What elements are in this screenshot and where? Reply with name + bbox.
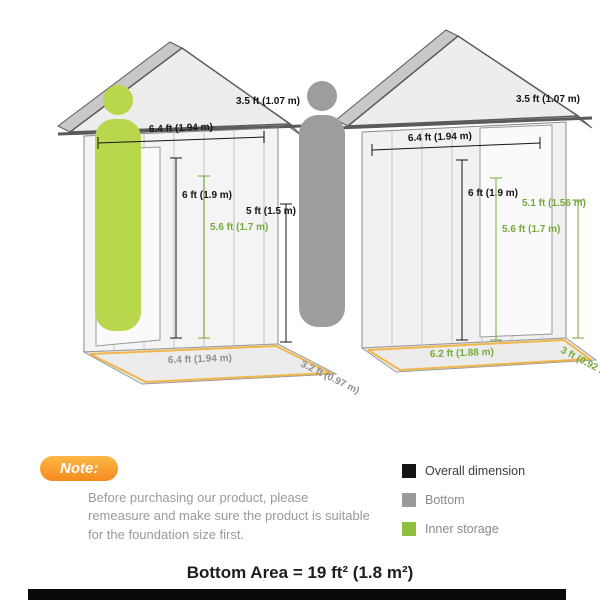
- dim-label-peak-height-right: 6 ft (1.9 m): [468, 188, 518, 199]
- inner-storage-swatch-icon: [402, 522, 416, 536]
- dim-label-overall-depth-right: 3.5 ft (1.07 m): [516, 94, 580, 105]
- shed-diagram: 6.4 ft (1.94 m) 3.5 ft (1.07 m) 6 ft (1.…: [0, 0, 600, 448]
- overall-dimension-swatch-icon: [402, 464, 416, 478]
- legend-item-inner-storage: Inner storage: [402, 522, 582, 536]
- bottom-black-bar: [28, 589, 566, 600]
- legend-label-bottom: Bottom: [425, 493, 465, 507]
- dim-label-overall-depth-left: 3.5 ft (1.07 m): [236, 96, 300, 107]
- dim-label-bottom-depth-left: 3.2 ft (0.97 m): [299, 359, 361, 397]
- note-block: Note: Before purchasing our product, ple…: [30, 456, 390, 544]
- info-section: Note: Before purchasing our product, ple…: [0, 448, 600, 558]
- dim-label-overall-width-left: 6.4 ft (1.94 m): [149, 122, 213, 135]
- bottom-area-text: Bottom Area = 19 ft² (1.8 m²): [0, 563, 600, 583]
- dim-label-overall-width-right: 6.4 ft (1.94 m): [408, 131, 472, 144]
- note-text: Before purchasing our product, please re…: [88, 489, 374, 544]
- legend-label-inner-storage: Inner storage: [425, 522, 499, 536]
- product-dimension-image: 6.4 ft (1.94 m) 3.5 ft (1.07 m) 6 ft (1.…: [0, 0, 600, 600]
- shed-right-view: 6.4 ft (1.94 m) 3.5 ft (1.07 m) 6 ft (1.…: [299, 30, 600, 381]
- dim-label-eave-height-left: 5 ft (1.5 m): [246, 206, 296, 217]
- legend-item-overall: Overall dimension: [402, 464, 582, 478]
- dim-label-bottom-width-left: 6.4 ft (1.94 m): [168, 353, 232, 366]
- legend-label-overall: Overall dimension: [425, 464, 525, 478]
- dim-label-inner-side-height-right: 5.1 ft (1.56 m): [522, 198, 586, 209]
- dim-label-inner-width-right: 6.2 ft (1.88 m): [430, 347, 494, 360]
- right-shed-roof-gable: [348, 36, 578, 126]
- bottom-swatch-icon: [402, 493, 416, 507]
- note-badge: Note:: [40, 456, 118, 481]
- left-shed-roof-gable: [70, 48, 290, 132]
- legend: Overall dimension Bottom Inner storage: [402, 456, 582, 551]
- dim-label-inner-height-left: 5.6 ft (1.7 m): [210, 222, 268, 233]
- legend-item-bottom: Bottom: [402, 493, 582, 507]
- dim-label-peak-height-left: 6 ft (1.9 m): [182, 190, 232, 201]
- dim-label-inner-height-right: 5.6 ft (1.7 m): [502, 224, 560, 235]
